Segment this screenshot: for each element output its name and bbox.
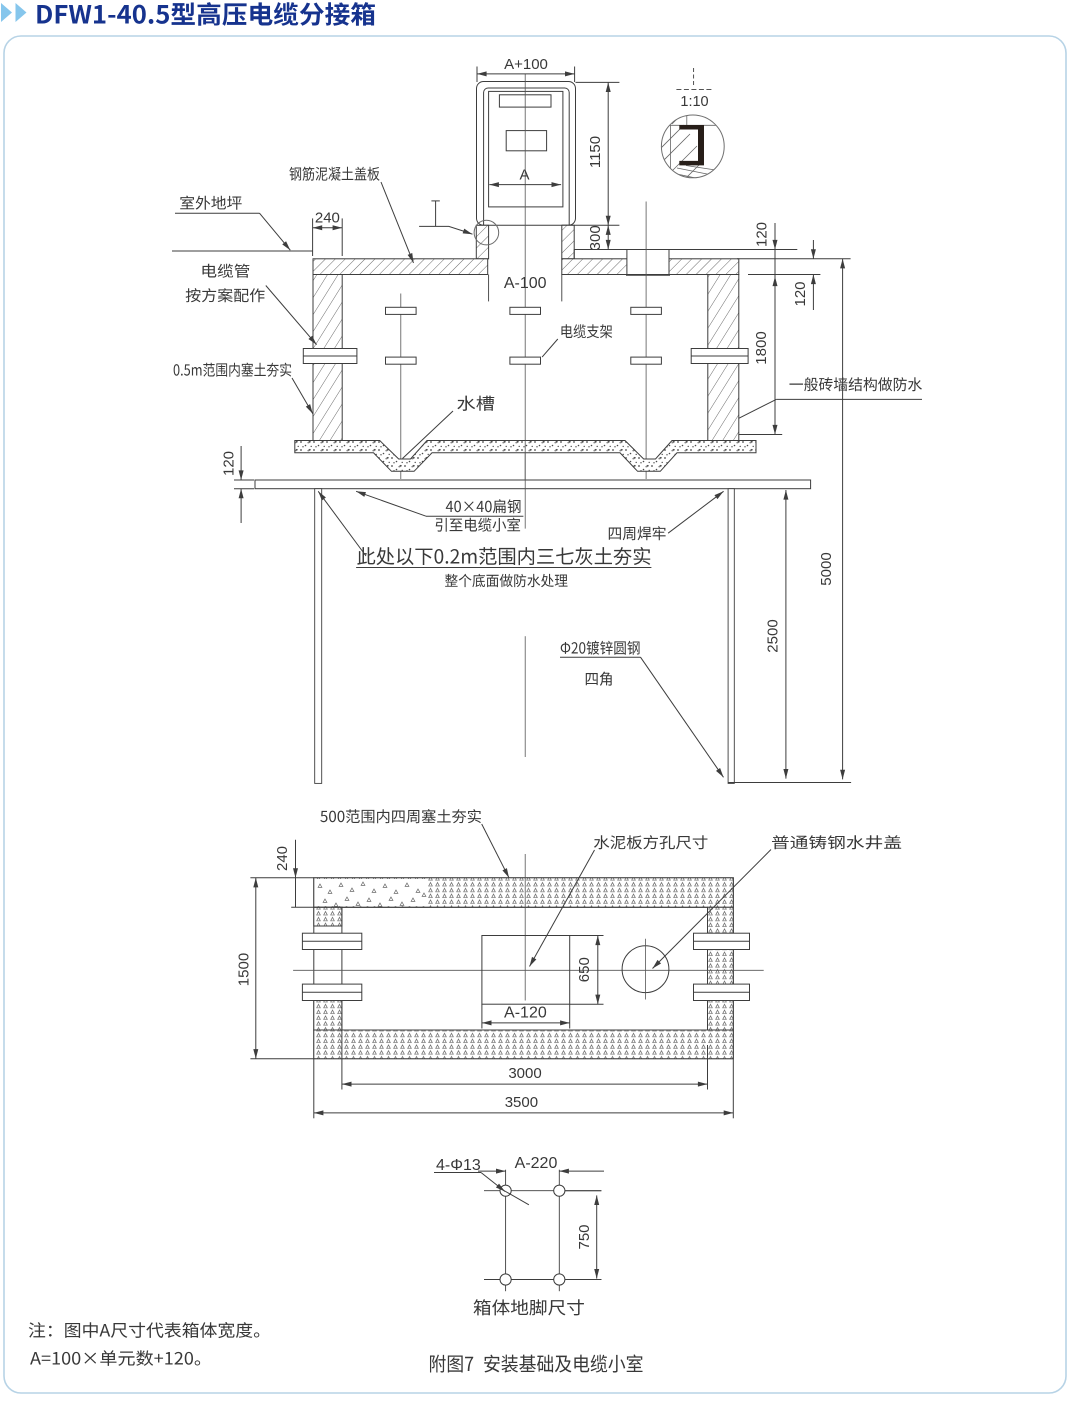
svg-text:240: 240 — [274, 846, 291, 871]
svg-text:4-Φ13: 4-Φ13 — [436, 1157, 481, 1174]
svg-text:1500: 1500 — [236, 953, 253, 986]
svg-text:120: 120 — [754, 222, 771, 247]
svg-text:A+100: A+100 — [504, 56, 548, 73]
svg-text:1800: 1800 — [753, 331, 770, 364]
svg-text:2500: 2500 — [765, 619, 782, 652]
svg-text:A-220: A-220 — [515, 1155, 558, 1172]
svg-text:3000: 3000 — [508, 1065, 541, 1082]
svg-text:1150: 1150 — [587, 136, 604, 168]
svg-text:650: 650 — [576, 957, 593, 982]
svg-text:A-100: A-100 — [504, 275, 547, 292]
svg-text:1:10: 1:10 — [680, 94, 708, 110]
svg-text:3500: 3500 — [505, 1094, 538, 1111]
svg-text:5000: 5000 — [818, 552, 835, 585]
svg-text:300: 300 — [587, 225, 604, 250]
svg-text:120: 120 — [792, 281, 809, 306]
svg-text:A-120: A-120 — [504, 1005, 547, 1022]
svg-text:A: A — [519, 167, 529, 184]
svg-text:240: 240 — [315, 210, 340, 227]
svg-text:750: 750 — [576, 1224, 593, 1249]
svg-text:120: 120 — [221, 451, 238, 476]
